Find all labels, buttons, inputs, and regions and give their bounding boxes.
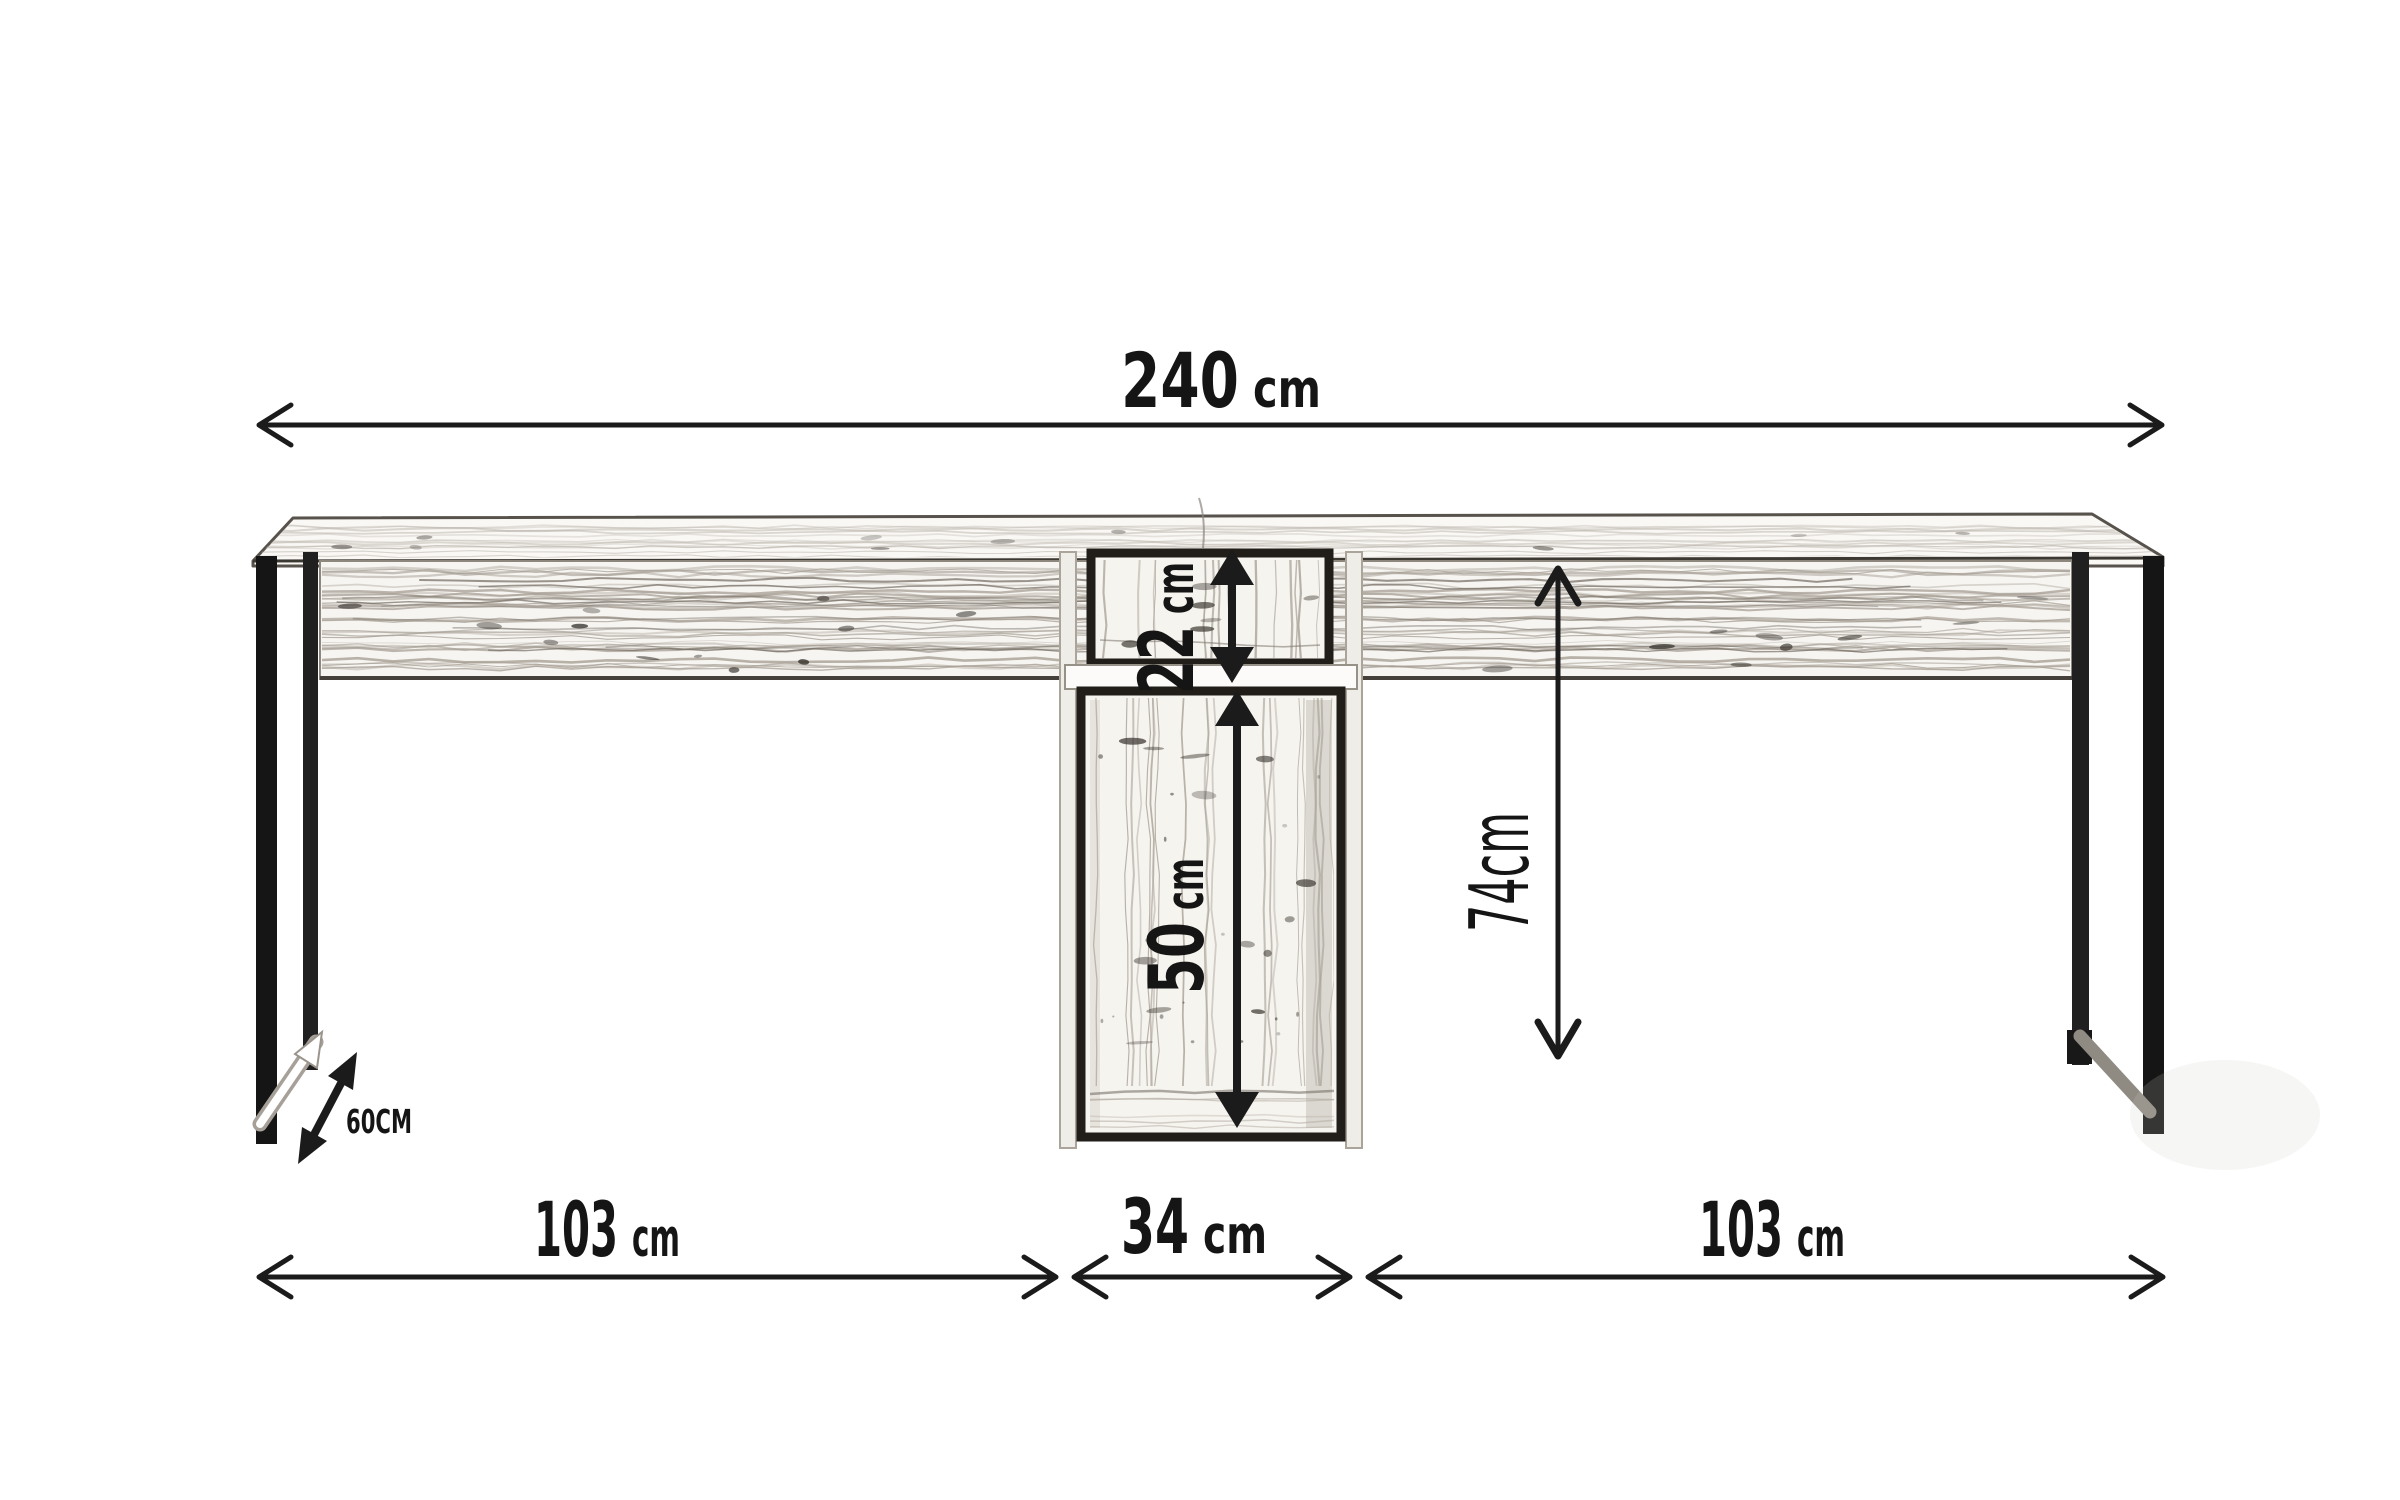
- dim-left-section: 103cm: [259, 1185, 1056, 1297]
- dim-height-label: 74cm: [1453, 812, 1548, 932]
- dim-right-section: 103cm: [1368, 1185, 2163, 1297]
- dim-depth-label: 60CM: [346, 1102, 412, 1141]
- lower-box-left-shade: [1090, 700, 1100, 1128]
- dim-total-width-label: 240cm: [1121, 336, 1321, 425]
- leg-right-front: [2143, 556, 2164, 1134]
- leg-left-back: [303, 552, 318, 1070]
- desk-dimension-diagram: 240cm 22cm 50cm 74cm 60CM: [0, 0, 2400, 1500]
- dim-left-section-label: 103cm: [534, 1185, 680, 1274]
- dim-center-section-label: 34cm: [1121, 1182, 1267, 1271]
- desk: [253, 498, 2320, 1170]
- pedestal-shelf-divider: [1065, 665, 1357, 689]
- leg-right-back: [2072, 552, 2089, 1065]
- pedestal-lower-box: [1081, 691, 1341, 1137]
- dim-right-section-label: 103cm: [1699, 1185, 1845, 1274]
- sketch-smudge: [2130, 1060, 2320, 1170]
- dim-center-section: 34cm: [1074, 1182, 1350, 1297]
- pedestal-right-side: [1346, 552, 1362, 1148]
- dim-total-width: 240cm: [259, 336, 2162, 445]
- diagram-canvas: 240cm 22cm 50cm 74cm 60CM: [0, 0, 2400, 1500]
- leg-left-front: [256, 556, 277, 1144]
- pedestal-left-side: [1060, 552, 1076, 1148]
